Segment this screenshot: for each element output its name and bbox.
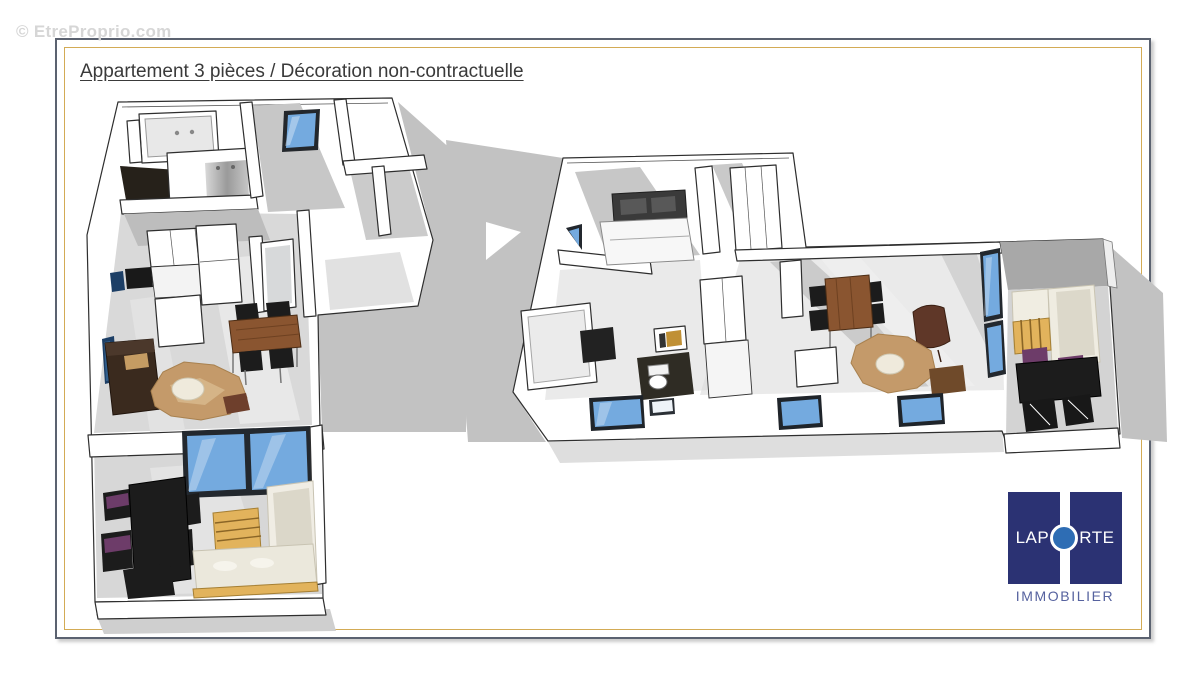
bath-table [580,327,616,363]
low-cabinet [795,347,838,387]
kitchen-island [155,295,204,347]
logo-circle-icon [1050,524,1078,552]
terrace-front-slab [95,598,326,619]
wardrobe-column [730,165,782,251]
terrace [1000,239,1120,453]
logo-squares: LAP RTE [1008,492,1122,584]
logo-text-right: RTE [1079,528,1114,548]
bath-cabinet [127,120,142,163]
listing-image: © EtreProprio.com Appartement 3 pièces /… [0,0,1200,675]
logo-text-left: LAP [1016,528,1050,548]
logo-wordmark: LAP RTE [1008,524,1122,552]
floor-plan-right [446,140,1167,463]
roof-slab [1000,239,1108,290]
wc-room [637,352,694,400]
watermark: © EtreProprio.com [16,22,172,42]
round-coffee-table [172,378,204,400]
tv-screen [110,271,125,292]
standing-mirror [261,239,296,311]
washbasin [654,326,687,352]
skylight-window [282,109,320,152]
page-title: Appartement 3 pièces / Décoration non-co… [80,61,524,83]
living-sofa [105,339,161,415]
cooktop [125,267,153,289]
side-table [929,365,966,395]
double-bed [600,190,694,265]
logo-subtitle: IMMOBILIER [1008,588,1122,604]
laporte-logo: LAP RTE IMMOBILIER [1008,492,1122,604]
floor-plan-left [87,98,472,634]
toilet [649,375,667,389]
round-coffee-table [876,354,904,374]
sink [205,160,249,200]
